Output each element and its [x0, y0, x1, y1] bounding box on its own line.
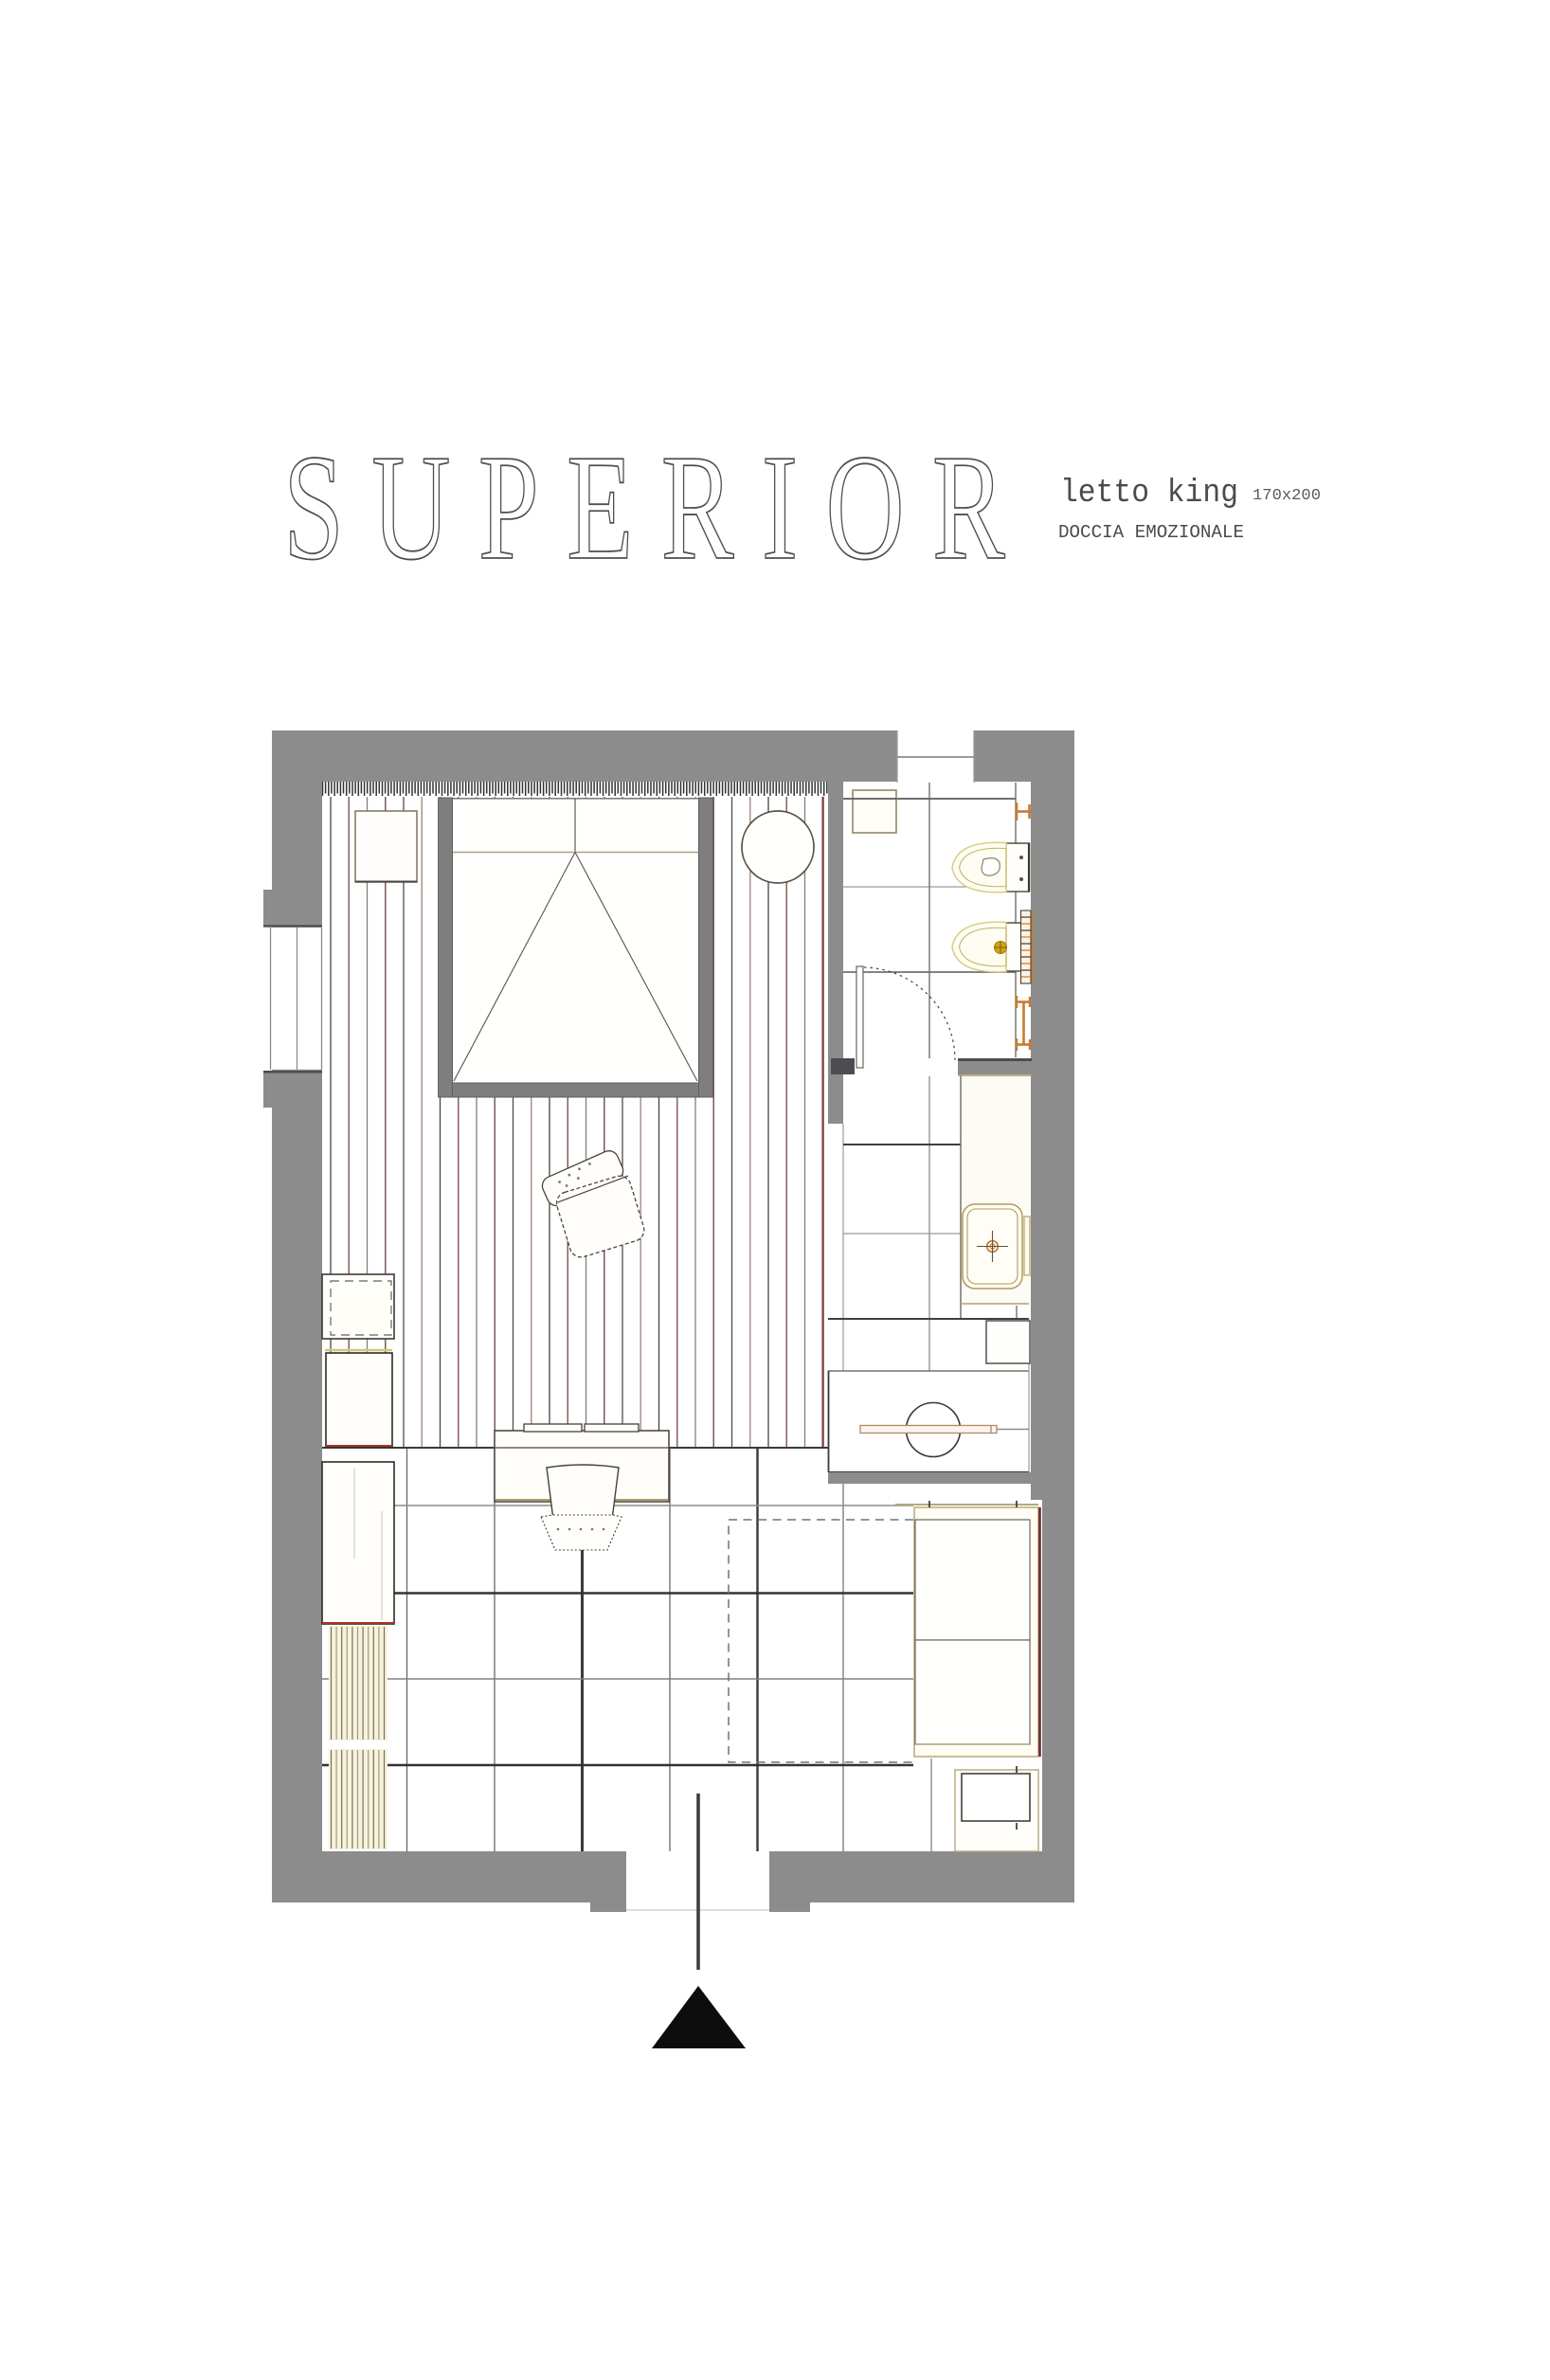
svg-text:170x200: 170x200 — [1253, 487, 1321, 505]
svg-text:DOCCIA EMOZIONALE: DOCCIA EMOZIONALE — [1058, 522, 1244, 543]
svg-text:letto king: letto king — [1060, 476, 1238, 512]
